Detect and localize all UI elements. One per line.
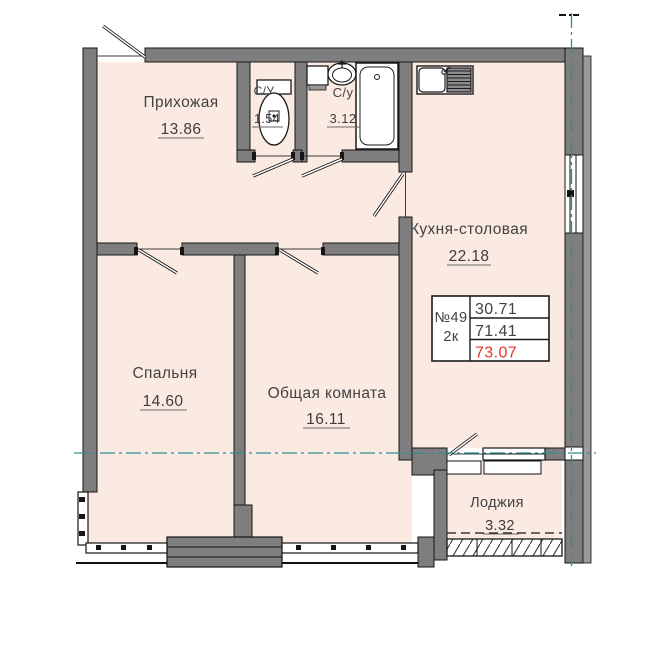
info-living-area: 30.71 <box>475 301 517 318</box>
info-area: 71.41 <box>475 323 517 340</box>
info-apartment-number: №49 <box>435 310 468 326</box>
kitchen-sink-icon <box>417 66 473 94</box>
info-total-area: 73.07 <box>475 345 517 362</box>
wall-right-mid <box>565 233 583 447</box>
floor-plan-svg: Прихожая 13.86 С/У 1.54 С/у 3.12 Кухня-с… <box>0 0 651 651</box>
info-apartment-type: 2к <box>443 329 458 345</box>
label-wc-area: 1.54 <box>254 112 280 126</box>
label-common-name: Общая комната <box>268 385 387 402</box>
label-common-area: 16.11 <box>306 411 346 428</box>
label-kitchen-name: Кухня-столовая <box>410 221 528 238</box>
wall-wc-left <box>237 62 250 162</box>
label-kitchen-area: 22.18 <box>449 248 490 265</box>
wall-right-upper <box>565 48 583 155</box>
balcony-pier <box>167 537 282 567</box>
label-bedroom-area: 14.60 <box>143 393 184 410</box>
sill-loggia-a <box>447 461 481 474</box>
wall-left <box>83 48 97 492</box>
wall-loggia-top-right <box>545 448 565 460</box>
door-entrance <box>103 26 145 57</box>
wall-right-outer-layer <box>583 56 591 563</box>
label-bedroom-name: Спальня <box>132 365 197 382</box>
label-hallway-area: 13.86 <box>161 121 202 138</box>
wall-bottom-corner-block <box>418 537 434 567</box>
floor-plan-page: Прихожая 13.86 С/У 1.54 С/у 3.12 Кухня-с… <box>0 0 651 651</box>
wall-kitchen-lower <box>399 217 412 460</box>
wall-top <box>145 48 583 62</box>
cabinet-icon <box>307 66 328 90</box>
wall-mid-c <box>323 243 399 255</box>
wall-mid-a <box>97 243 137 255</box>
wall-loggia-left <box>434 470 447 560</box>
wall-kitchen-upper <box>399 62 412 172</box>
label-bath-name: С/у <box>333 85 354 100</box>
wall-partition <box>234 255 245 545</box>
info-table: №49 2к 30.71 71.41 73.07 <box>432 296 549 362</box>
label-loggia-area: 3.32 <box>485 518 515 534</box>
label-wc-name: С/У <box>254 84 275 98</box>
sill-loggia-b <box>484 461 541 474</box>
label-bath-area: 3.12 <box>330 111 357 126</box>
window-common-bottom <box>282 543 418 553</box>
wall-bath-bottom-c <box>342 150 399 162</box>
label-hallway-name: Прихожая <box>143 94 218 111</box>
wall-right-lower <box>565 460 583 563</box>
wall-wc-bath <box>295 62 307 162</box>
label-loggia-name: Лоджия <box>470 495 524 511</box>
wall-mid-b <box>182 243 278 255</box>
bathtub-icon <box>356 63 398 149</box>
